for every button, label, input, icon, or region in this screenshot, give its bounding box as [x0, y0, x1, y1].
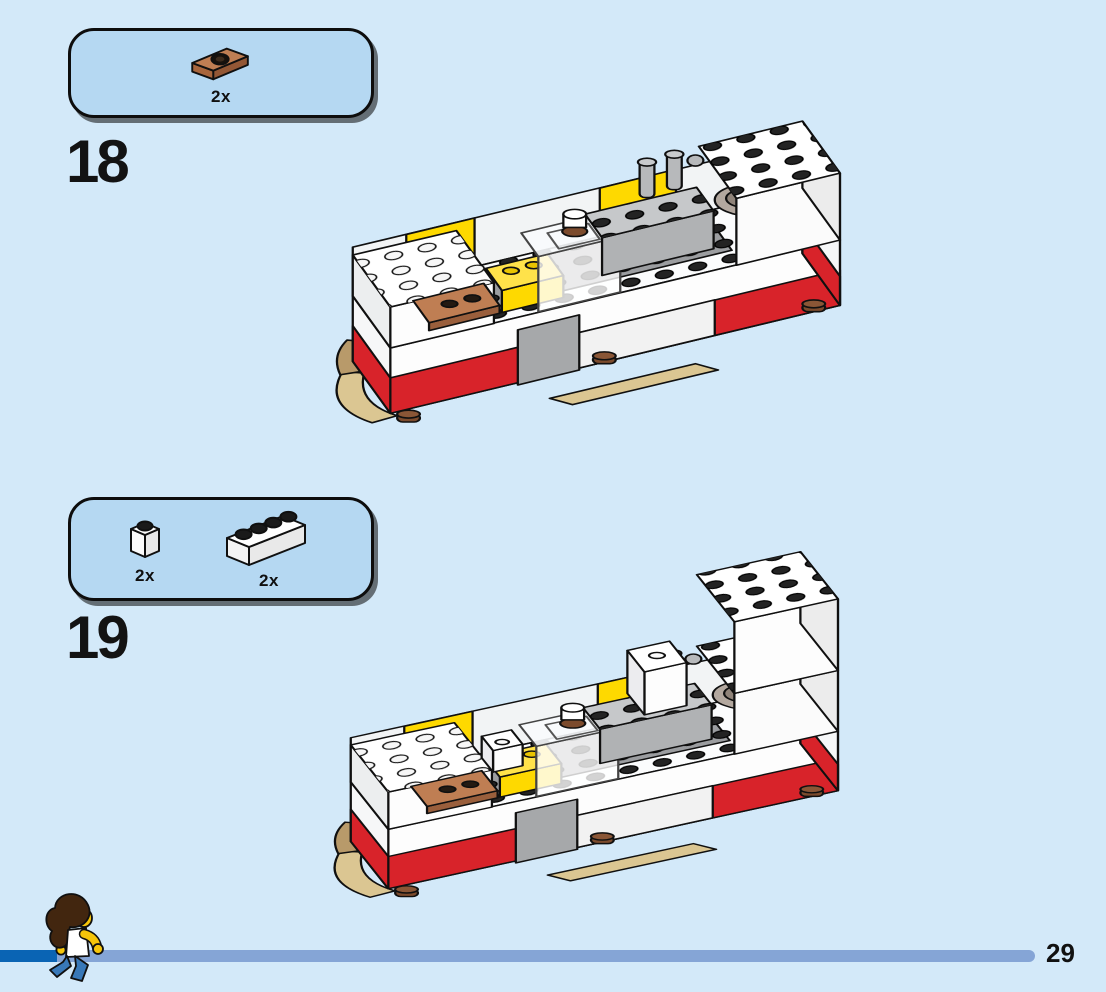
part-entry: 2x — [219, 508, 319, 591]
camper-chassis-step-18 — [330, 118, 865, 433]
step-19-model-illustration — [328, 536, 863, 908]
part-quantity-label: 2x — [211, 87, 231, 107]
progress-bar-track — [57, 950, 1035, 962]
part-quantity-label: 2x — [259, 571, 279, 591]
page-number: 29 — [1046, 938, 1096, 969]
part-entry: 2x — [123, 513, 167, 586]
part-entry: 2x — [186, 40, 256, 107]
part-icon-brick-1x4 — [219, 508, 319, 570]
instruction-page: { "page": { "background_color": "#d3e9f9… — [0, 0, 1106, 992]
step-number-18: 18 — [66, 132, 127, 192]
step-18-model-illustration — [330, 118, 865, 433]
step-number-19: 19 — [66, 608, 127, 668]
walking-minifigure-icon — [42, 884, 106, 984]
camper-chassis-step-19 — [328, 536, 863, 908]
part-icon-plate-1x2-jumper — [186, 40, 256, 86]
part-quantity-label: 2x — [135, 566, 155, 586]
part-icon-brick-1x1 — [123, 513, 167, 565]
step-18-parts-callout: 2x — [68, 28, 374, 118]
